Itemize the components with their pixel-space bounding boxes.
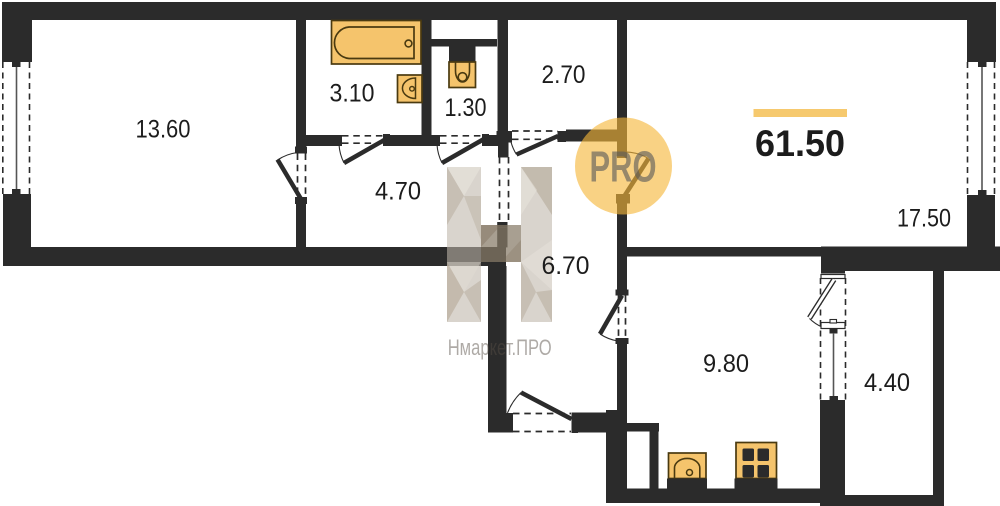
svg-text:6.70: 6.70 [542,252,590,280]
svg-text:4.40: 4.40 [864,369,910,397]
svg-text:61.50: 61.50 [755,123,845,164]
svg-text:3.10: 3.10 [330,80,375,108]
svg-text:13.60: 13.60 [136,116,191,144]
svg-text:1.30: 1.30 [445,94,487,122]
svg-text:2.70: 2.70 [542,61,586,89]
svg-text:17.50: 17.50 [897,205,951,233]
svg-text:PRO: PRO [590,143,657,192]
svg-text:4.70: 4.70 [375,178,421,206]
svg-text:9.80: 9.80 [703,350,749,378]
svg-text:Нмаркет.ПРО: Нмаркет.ПРО [448,335,552,360]
